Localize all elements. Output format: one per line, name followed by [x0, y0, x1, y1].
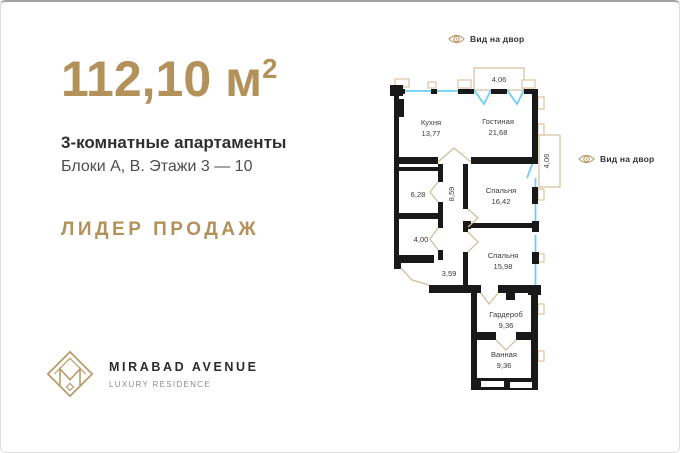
area-value: 112,10 м [61, 51, 262, 107]
logo-tagline: LUXURY RESIDENCE [109, 380, 259, 389]
room-labels: Кухня 13,77 Гостиная 21,68 6,28 8,59 Спа… [411, 75, 551, 370]
room-bedroom1-area: 16,42 [491, 197, 510, 206]
room-wardrobe-name: Гардероб [489, 310, 523, 319]
view-annotation-text: Вид на двор [470, 34, 524, 44]
view-annotation-right: Вид на двор [578, 153, 654, 165]
view-annotation-top: Вид на двор [448, 33, 524, 45]
room-bathroom-name: Ванная [491, 350, 517, 359]
logo-text: MIRABAD AVENUE LUXURY RESIDENCE [109, 360, 259, 389]
room-living-area: 21,68 [488, 128, 507, 137]
area-superscript: 2 [262, 53, 277, 84]
view-annotation-text: Вид на двор [600, 154, 654, 164]
balcony-right-dim: 4,06 [542, 154, 551, 169]
apartment-type: 3-комнатные апартаменты [61, 133, 286, 153]
area-headline: 112,10 м2 [61, 50, 277, 108]
sales-leader-badge: ЛИДЕР ПРОДАЖ [61, 219, 259, 241]
eye-icon [578, 153, 595, 165]
hall-359-area: 3,59 [442, 269, 457, 278]
room-628-area: 6,28 [411, 190, 426, 199]
room-bedroom2-name: Спальня [488, 251, 519, 260]
logo-diamond-icon [45, 349, 95, 399]
blocks-floors: Блоки А, В. Этажи 3 — 10 [61, 158, 252, 176]
door-swings [401, 148, 516, 350]
hall-859-area: 8,59 [447, 187, 456, 202]
listing-card: 112,10 м2 3-комнатные апартаменты Блоки … [0, 0, 680, 453]
eye-icon [448, 33, 465, 45]
room-bedroom2-area: 15,98 [493, 262, 512, 271]
balcony-top-dim: 4,06 [492, 75, 507, 84]
room-living-name: Гостиная [482, 117, 514, 126]
room-kitchen-name: Кухня [421, 118, 441, 127]
room-bathroom-area: 9,36 [497, 361, 512, 370]
room-kitchen-area: 13,77 [421, 129, 440, 138]
room-bedroom1-name: Спальня [486, 186, 517, 195]
floorplan: Кухня 13,77 Гостиная 21,68 6,28 8,59 Спа… [381, 22, 680, 422]
brand-logo: MIRABAD AVENUE LUXURY RESIDENCE [45, 349, 259, 399]
room-400-area: 4,00 [414, 235, 429, 244]
room-wardrobe-area: 9,36 [499, 321, 514, 330]
logo-name: MIRABAD AVENUE [109, 360, 259, 374]
